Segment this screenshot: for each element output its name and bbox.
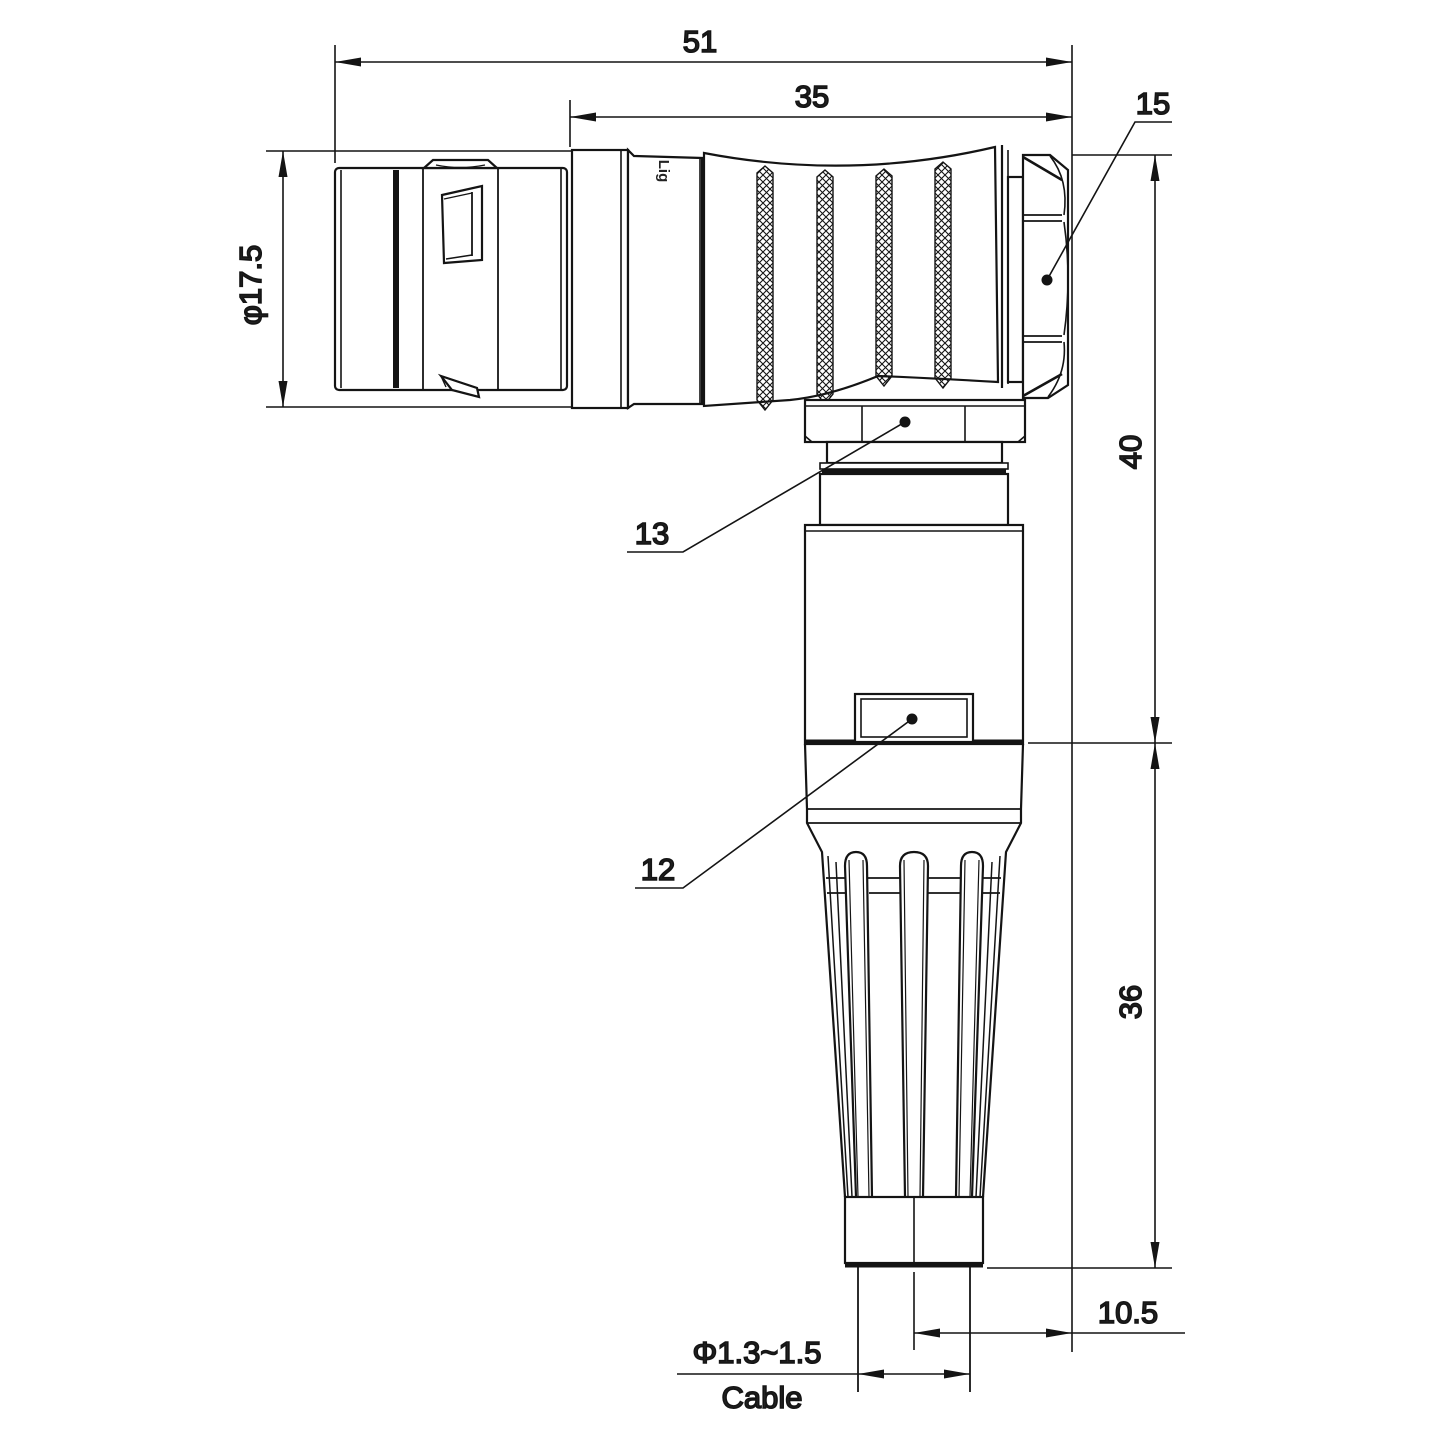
knurl-band [876, 169, 892, 386]
collar-outline [572, 150, 628, 408]
leader-dot [907, 714, 918, 725]
dark-band [393, 170, 399, 388]
dim-35-label: 35 [795, 79, 829, 114]
dim-17-5-label: φ17.5 [233, 245, 268, 325]
boot-outline-left [805, 744, 845, 1197]
coupling-outline [704, 147, 998, 406]
body-engraving-text: Lig [655, 160, 672, 183]
ref-13-label: 13 [635, 516, 669, 551]
waist-section [628, 150, 702, 408]
leader-dot [900, 417, 911, 428]
front-release-sleeve [335, 160, 567, 397]
connector-drawing-canvas: Lightany [0, 0, 1440, 1440]
collar-ring [572, 150, 628, 408]
dim-10-5-label: 10.5 [1098, 1295, 1158, 1330]
dim-40-label: 40 [1113, 435, 1148, 469]
leader-dot [1042, 275, 1053, 286]
dim-51-label: 51 [683, 24, 717, 59]
technical-drawing-page: Lightany [0, 0, 1440, 1440]
cable-ferrule [845, 1197, 983, 1265]
ref-15-label: 15 [1136, 86, 1170, 121]
groove-ring [820, 463, 1008, 469]
knurl-band [935, 162, 951, 388]
dim-cable-diameter [677, 1370, 970, 1379]
elbow-body [805, 400, 1025, 744]
dim-cable-diameter-label: Φ1.3~1.5 [692, 1335, 821, 1370]
hex-nut-assembly [1002, 145, 1068, 398]
knurl-band [757, 166, 773, 410]
connector-side-view: Lig [335, 145, 1068, 1392]
dim-36-label: 36 [1113, 985, 1148, 1019]
washer-strip [1008, 177, 1023, 382]
knurl-band [817, 170, 833, 404]
cable-word-label: Cable [722, 1380, 803, 1415]
knurled-coupling [704, 147, 998, 410]
ref-12-label: 12 [641, 852, 675, 887]
strain-relief-boot [805, 744, 1023, 1197]
upper-neck [820, 474, 1008, 525]
waist-outline [628, 150, 702, 408]
boot-outline-right [983, 744, 1023, 1197]
